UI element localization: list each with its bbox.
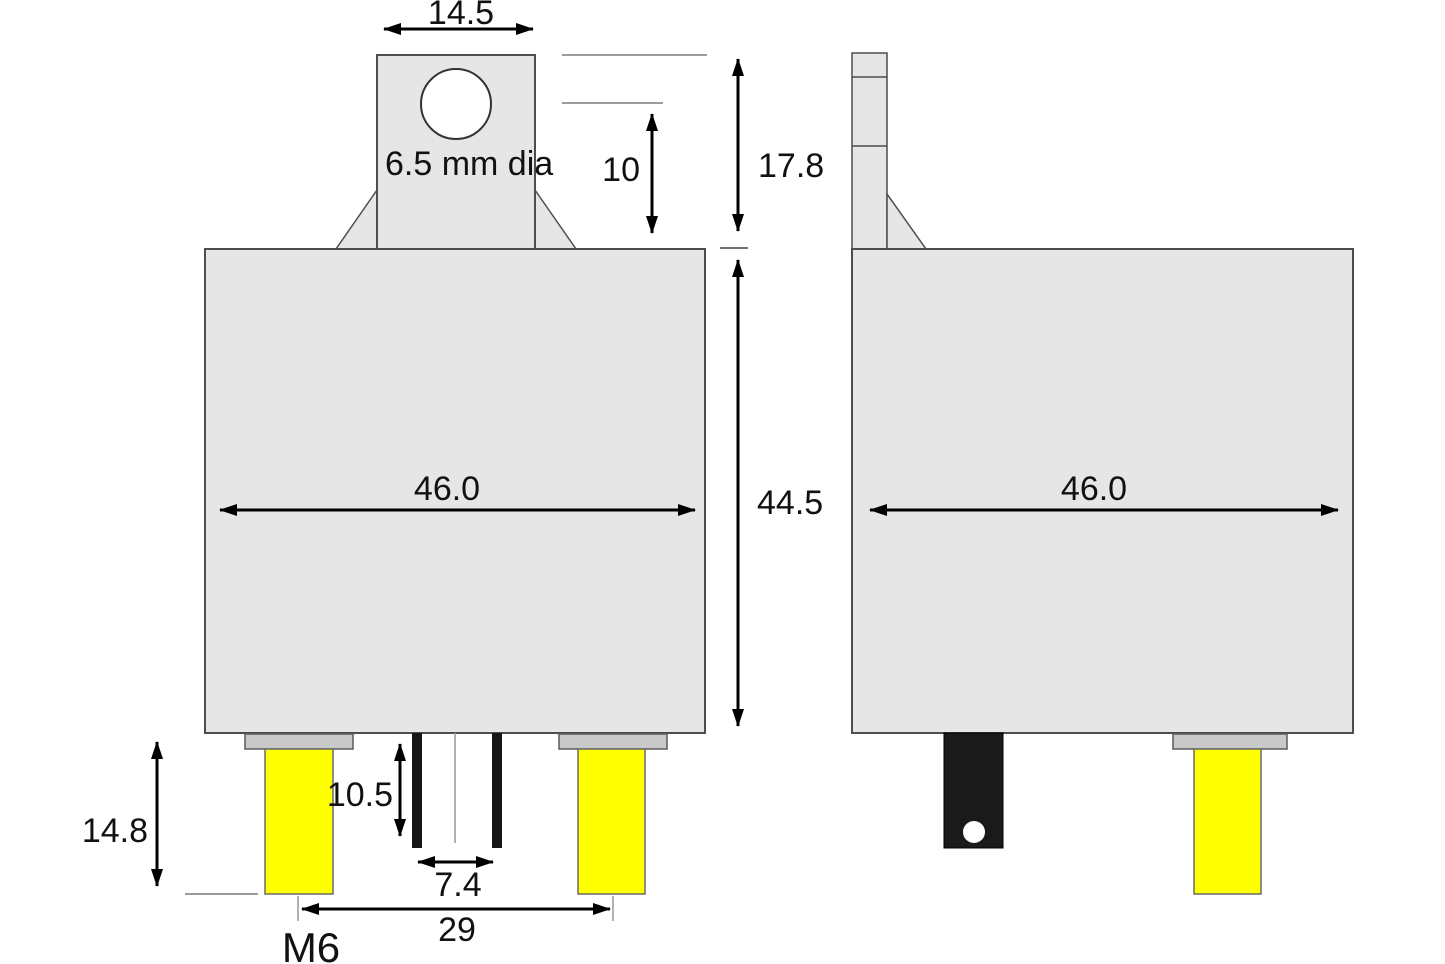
dim-stud-pitch-label: 29 [438, 911, 476, 949]
dim-pin-length-label: 10.5 [327, 776, 393, 814]
dim-pin-pitch-label: 7.4 [434, 866, 481, 904]
engineering-drawing: 14.5 6.5 mm dia 10 17.8 44.5 46.0 46.0 1… [0, 0, 1445, 964]
stud-thread-label: M6 [282, 924, 340, 964]
dim-hole-to-body-label: 10 [602, 151, 640, 189]
bracket-gusset-right [535, 190, 576, 249]
dim-side-body-width-label: 46.0 [1061, 470, 1127, 508]
dim-front-body-width-label: 46.0 [414, 470, 480, 508]
dim-stud-length-label: 14.8 [82, 812, 148, 850]
blade-terminal-hole [963, 821, 985, 843]
side-stud-base [1173, 734, 1287, 749]
dim-bracket-width-label: 14.5 [428, 0, 494, 32]
stud-terminal-left [265, 749, 333, 894]
coil-pin-right [492, 733, 502, 848]
stud-base-right [559, 734, 667, 749]
stud-terminal-right [578, 749, 645, 894]
side-bracket [852, 53, 887, 249]
dim-body-height-label: 44.5 [757, 484, 823, 522]
dim-bracket-height-label: 17.8 [758, 147, 824, 185]
bracket-gusset-left [336, 190, 377, 249]
side-bracket-gusset [887, 194, 926, 249]
hole-diameter-label: 6.5 mm dia [385, 145, 553, 183]
coil-pin-left [412, 733, 422, 848]
stud-base-left [245, 734, 353, 749]
side-stud-terminal [1194, 749, 1261, 894]
bracket-hole [421, 69, 491, 139]
